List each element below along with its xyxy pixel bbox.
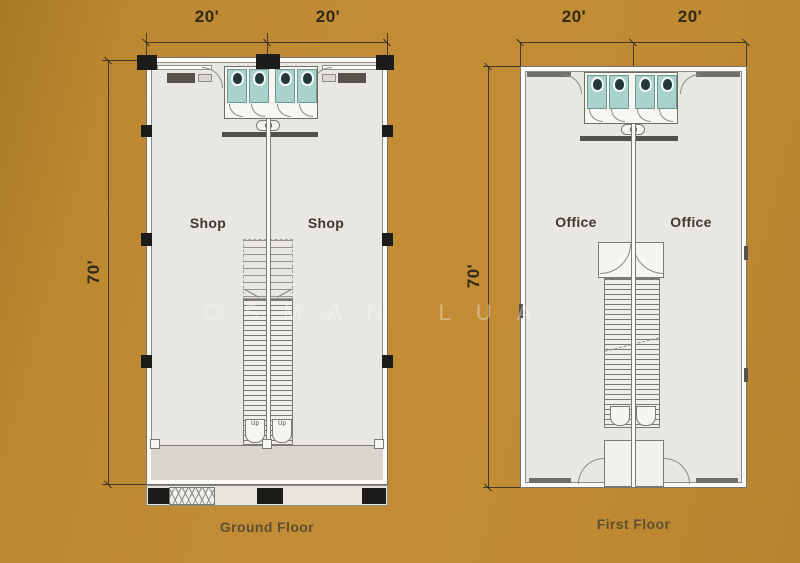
door-arc [589, 109, 603, 122]
toilet-icon [233, 73, 242, 84]
door-arc [637, 109, 651, 122]
ground-floor-caption: Ground Floor [146, 519, 388, 535]
toilet-stall [297, 69, 317, 103]
window [696, 72, 740, 77]
toilet-stall [657, 75, 677, 109]
post [262, 439, 272, 449]
floorplan-sheet: 20' 20' 70' [0, 0, 800, 563]
toilet-stall [275, 69, 295, 103]
post [150, 439, 160, 449]
door-arc [659, 109, 673, 122]
front-apron [146, 485, 388, 506]
dimension-extension-line [520, 42, 521, 66]
counter [338, 73, 366, 83]
dimension-line [488, 66, 489, 488]
stair-bottom-step [610, 406, 630, 426]
door-arc [299, 104, 313, 117]
toilet-stall [609, 75, 629, 109]
toilet-stall [635, 75, 655, 109]
window [529, 478, 571, 483]
first-floor-caption: First Floor [520, 516, 747, 532]
room-label-shop-right: Shop [268, 215, 384, 231]
toilet-icon [303, 73, 312, 84]
toilet-icon [281, 73, 290, 84]
column [141, 125, 152, 137]
door-arc [611, 109, 625, 122]
window [696, 478, 738, 483]
column [256, 54, 280, 69]
party-wall [266, 119, 271, 445]
toilet-icon [615, 79, 624, 90]
dimension-line [108, 60, 109, 484]
ground-floor-plan: 20' 20' 70' [146, 57, 388, 485]
toilet-icon [593, 79, 602, 90]
walkway [151, 445, 383, 480]
column [382, 233, 393, 246]
dimension-label: 20' [665, 7, 715, 27]
column [382, 355, 393, 368]
first-floor-plan: 20' 20' 70' [520, 66, 747, 488]
dimension-label: 20' [182, 7, 232, 27]
party-wall [631, 124, 636, 448]
dimension-label: 70' [464, 254, 484, 298]
dimension-extension-line [746, 42, 747, 66]
toilet-block [224, 66, 318, 119]
dimension-label: 20' [549, 7, 599, 27]
dimension-label: 70' [84, 250, 104, 294]
column [376, 55, 394, 70]
column [137, 55, 157, 70]
party-wall [631, 440, 636, 487]
counter [167, 73, 195, 83]
dimension-label: 20' [303, 7, 353, 27]
room-label-shop-left: Shop [150, 215, 266, 231]
column [257, 488, 283, 504]
toilet-stall [227, 69, 247, 103]
toilet-icon [255, 73, 264, 84]
toilet-icon [641, 79, 650, 90]
column [141, 233, 152, 246]
post [374, 439, 384, 449]
column [382, 125, 393, 137]
wall-marker [744, 368, 748, 382]
watermark-text: CSMAN LUA [203, 300, 556, 326]
partition-wall [580, 136, 678, 141]
toilet-block [584, 72, 678, 124]
toilet-stall [587, 75, 607, 109]
wall-marker [744, 246, 748, 260]
room-label-office-right: Office [635, 214, 747, 230]
toilet-stall [249, 69, 269, 103]
door-arc [229, 104, 243, 117]
room-label-office-left: Office [520, 214, 632, 230]
stair-bottom-step: Up [272, 419, 292, 443]
door-arc [251, 104, 265, 117]
dimension-extension-line [633, 42, 634, 66]
column [141, 355, 152, 368]
door-arc [277, 104, 291, 117]
column [362, 488, 386, 504]
stair-bottom-step [636, 406, 656, 426]
toilet-icon [663, 79, 672, 90]
ramp-hatch [169, 487, 215, 505]
